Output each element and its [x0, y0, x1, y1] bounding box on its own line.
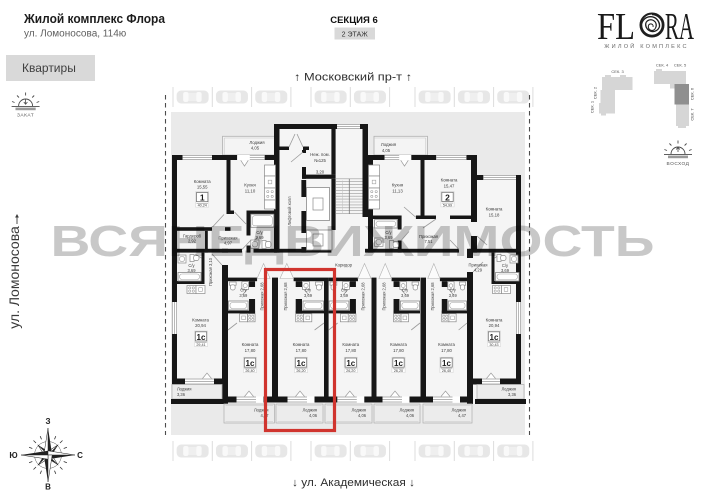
svg-text:Лоджия: Лоджия: [302, 408, 317, 413]
svg-text:Комната: Комната: [192, 317, 209, 322]
svg-text:Кухня: Кухня: [392, 183, 404, 188]
svg-text:1с: 1с: [346, 359, 355, 368]
svg-text:Ю: Ю: [9, 451, 17, 460]
svg-text:1с: 1с: [246, 359, 255, 368]
svg-text:1с: 1с: [197, 333, 206, 342]
svg-text:FL: FL: [597, 6, 635, 48]
svg-text:СЕКЦИЯ 6: СЕКЦИЯ 6: [330, 15, 378, 26]
svg-text:3,69: 3,69: [449, 293, 458, 298]
svg-text:СЕК. 6: СЕК. 6: [690, 87, 695, 100]
svg-text:3,69: 3,69: [501, 268, 510, 273]
svg-text:Комната: Комната: [194, 179, 211, 184]
svg-text:ЗАКАТ: ЗАКАТ: [17, 113, 34, 119]
svg-text:Лоджия: Лоджия: [451, 408, 466, 413]
svg-text:С/у: С/у: [450, 288, 457, 293]
svg-text:1: 1: [200, 193, 205, 203]
svg-text:Неж. пом.: Неж. пом.: [310, 152, 330, 157]
svg-text:ЖИЛОЙ КОМПЛЕКС: ЖИЛОЙ КОМПЛЕКС: [604, 42, 688, 50]
svg-text:4,06: 4,06: [358, 413, 367, 418]
svg-text:Комната: Комната: [441, 178, 458, 183]
svg-text:ул. Ломоносова: ул. Ломоносова: [6, 226, 22, 329]
svg-text:3,69: 3,69: [401, 293, 410, 298]
svg-text:Комната: Комната: [342, 342, 359, 347]
svg-text:54,99: 54,99: [443, 204, 452, 208]
svg-text:Комната: Комната: [486, 317, 503, 322]
svg-text:Прихожая 2,68: Прихожая 2,68: [430, 282, 435, 311]
svg-text:1с: 1с: [442, 359, 451, 368]
svg-text:ул. Ломоносова, 114ю: ул. Ломоносова, 114ю: [24, 29, 127, 40]
svg-text:RA: RA: [665, 6, 694, 48]
svg-text:26,20: 26,20: [394, 369, 403, 373]
svg-text:17,80: 17,80: [393, 348, 404, 353]
svg-text:Кухня: Кухня: [244, 183, 256, 188]
svg-text:30,43: 30,43: [489, 343, 498, 347]
svg-text:40,24: 40,24: [198, 204, 207, 208]
svg-text:Прихожая 2,68: Прихожая 2,68: [381, 282, 386, 311]
svg-text:Прихожая 2,68: Прихожая 2,68: [259, 282, 264, 311]
svg-text:2: 2: [445, 192, 450, 202]
svg-text:СЕК. 5: СЕК. 5: [674, 63, 687, 68]
svg-text:4,05: 4,05: [251, 146, 260, 151]
svg-text:Прихожая 2,68: Прихожая 2,68: [283, 282, 288, 311]
svg-text:Комната: Комната: [242, 342, 259, 347]
svg-text:№125: №125: [314, 158, 326, 163]
svg-text:1с: 1с: [490, 333, 499, 342]
svg-text:29,41: 29,41: [196, 343, 205, 347]
svg-text:СЕК. 4: СЕК. 4: [656, 63, 669, 68]
svg-text:11,13: 11,13: [392, 189, 403, 194]
svg-text:С/у: С/у: [305, 288, 312, 293]
svg-text:Лоджия: Лоджия: [249, 140, 265, 145]
svg-text:26,40: 26,40: [245, 369, 254, 373]
svg-text:С/у: С/у: [402, 288, 409, 293]
svg-text:Жилой комплекс Флора: Жилой комплекс Флора: [23, 11, 166, 26]
svg-text:3,69: 3,69: [304, 293, 313, 298]
svg-text:4,06: 4,06: [309, 413, 318, 418]
svg-text:17,80: 17,80: [441, 348, 452, 353]
svg-text:ВСЯНЕДВИЖИМОСТЬ: ВСЯНЕДВИЖИМОСТЬ: [51, 217, 655, 266]
svg-text:15,47: 15,47: [444, 184, 455, 189]
svg-text:СЕК. 3: СЕК. 3: [611, 69, 624, 74]
svg-text:4,29: 4,29: [474, 268, 483, 273]
svg-text:3,20: 3,20: [316, 170, 325, 175]
svg-text:3,36: 3,36: [508, 392, 517, 397]
svg-text:Лоджия: Лоджия: [399, 408, 414, 413]
svg-text:17,80: 17,80: [345, 348, 356, 353]
svg-text:4,06: 4,06: [406, 413, 415, 418]
svg-text:3,69: 3,69: [188, 268, 197, 273]
svg-text:СЕК. 7: СЕК. 7: [690, 108, 695, 121]
svg-text:2 ЭТАЖ: 2 ЭТАЖ: [342, 31, 369, 38]
svg-text:В: В: [45, 483, 51, 492]
svg-text:17,80: 17,80: [245, 348, 256, 353]
svg-text:Комната: Комната: [293, 342, 310, 347]
svg-text:Лоджия: Лоджия: [381, 142, 397, 147]
svg-text:Лоджия: Лоджия: [351, 408, 366, 413]
svg-text:26,20: 26,20: [296, 369, 305, 373]
svg-text:Квартиры: Квартиры: [22, 61, 76, 75]
svg-text:СЕК. 1: СЕК. 1: [590, 100, 595, 113]
svg-text:Комната: Комната: [390, 342, 407, 347]
svg-text:С/у: С/у: [240, 288, 247, 293]
svg-text:3,69: 3,69: [340, 293, 349, 298]
svg-text:ВОСХОД: ВОСХОД: [667, 161, 690, 167]
svg-text:11,10: 11,10: [245, 189, 256, 194]
svg-text:4,47: 4,47: [458, 413, 467, 418]
svg-text:17,80: 17,80: [296, 348, 307, 353]
svg-text:Комната: Комната: [438, 342, 455, 347]
svg-text:Лоджия: Лоджия: [177, 387, 192, 392]
svg-text:1с: 1с: [297, 359, 306, 368]
svg-text:С: С: [77, 451, 83, 460]
svg-text:↑ Московский пр-т ↑: ↑ Московский пр-т ↑: [294, 72, 412, 84]
svg-text:Прихожая 2,68: Прихожая 2,68: [360, 282, 365, 311]
svg-text:26,40: 26,40: [442, 369, 451, 373]
svg-text:1с: 1с: [394, 359, 403, 368]
svg-text:С/у: С/у: [341, 288, 348, 293]
svg-text:20,94: 20,94: [489, 323, 500, 328]
svg-text:4,05: 4,05: [382, 148, 391, 153]
svg-text:СЕК. 2: СЕК. 2: [593, 86, 598, 99]
svg-text:26,20: 26,20: [346, 369, 355, 373]
svg-text:20,94: 20,94: [195, 323, 206, 328]
svg-text:↓ ул. Академическая ↓: ↓ ул. Академическая ↓: [292, 477, 415, 489]
svg-text:Комната: Комната: [486, 207, 503, 212]
svg-text:Лоджия: Лоджия: [501, 387, 516, 392]
svg-text:15,55: 15,55: [197, 185, 208, 190]
svg-text:3,36: 3,36: [177, 392, 186, 397]
svg-text:3,69: 3,69: [239, 293, 248, 298]
svg-text:З: З: [45, 417, 50, 426]
